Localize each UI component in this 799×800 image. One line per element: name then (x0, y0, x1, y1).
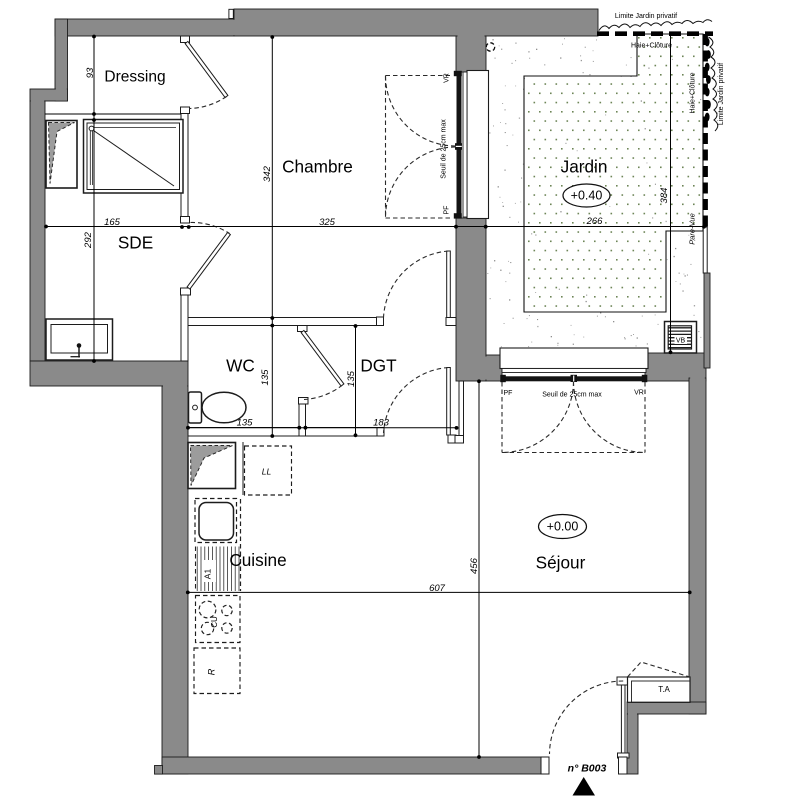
svg-text:325: 325 (319, 217, 336, 228)
svg-text:135: 135 (346, 370, 357, 387)
svg-text:292: 292 (83, 231, 94, 249)
svg-text:135: 135 (260, 369, 271, 386)
svg-text:Seuil de 25cm max: Seuil de 25cm max (441, 119, 448, 179)
svg-text:+0.40: +0.40 (571, 189, 603, 203)
svg-text:93: 93 (85, 67, 96, 78)
svg-text:VB: VB (676, 338, 686, 345)
svg-text:135: 135 (237, 418, 254, 429)
svg-text:Séjour: Séjour (536, 553, 586, 573)
svg-text:Chambre: Chambre (282, 157, 353, 177)
svg-text:DGT: DGT (360, 356, 397, 376)
svg-text:Seuil de 25cm max: Seuil de 25cm max (542, 392, 602, 399)
svg-text:456: 456 (469, 557, 480, 574)
svg-text:PF: PF (504, 390, 513, 397)
svg-text:342: 342 (262, 165, 273, 182)
svg-text:+0.00: +0.00 (547, 520, 579, 534)
svg-text:LL: LL (262, 467, 272, 477)
svg-text:CU: CU (210, 616, 219, 628)
svg-text:607: 607 (429, 583, 446, 594)
svg-text:SDE: SDE (118, 233, 153, 253)
svg-text:A1: A1 (203, 569, 213, 580)
svg-text:PF: PF (444, 206, 451, 215)
svg-text:n° B003: n° B003 (568, 763, 607, 775)
svg-text:R: R (207, 668, 217, 675)
svg-text:T.A: T.A (658, 685, 670, 694)
svg-text:Cuisine: Cuisine (229, 550, 286, 570)
svg-text:Dressing: Dressing (104, 69, 165, 86)
svg-text:VR: VR (634, 390, 644, 397)
svg-text:266: 266 (586, 216, 604, 227)
svg-text:VR: VR (444, 73, 451, 83)
svg-text:Limite Jardin privatif: Limite Jardin privatif (615, 13, 677, 20)
svg-text:Jardin: Jardin (561, 157, 608, 177)
svg-text:Haie+Clôture: Haie+Clôture (631, 43, 672, 50)
svg-text:Limite Jardin privatif: Limite Jardin privatif (718, 63, 725, 125)
svg-text:Haie+Clôture: Haie+Clôture (690, 72, 697, 113)
svg-text:WC: WC (226, 356, 255, 376)
svg-text:165: 165 (104, 217, 121, 228)
svg-text:384: 384 (659, 188, 670, 204)
svg-text:Pare-Vue: Pare-Vue (688, 213, 697, 245)
svg-text:183: 183 (373, 418, 390, 429)
